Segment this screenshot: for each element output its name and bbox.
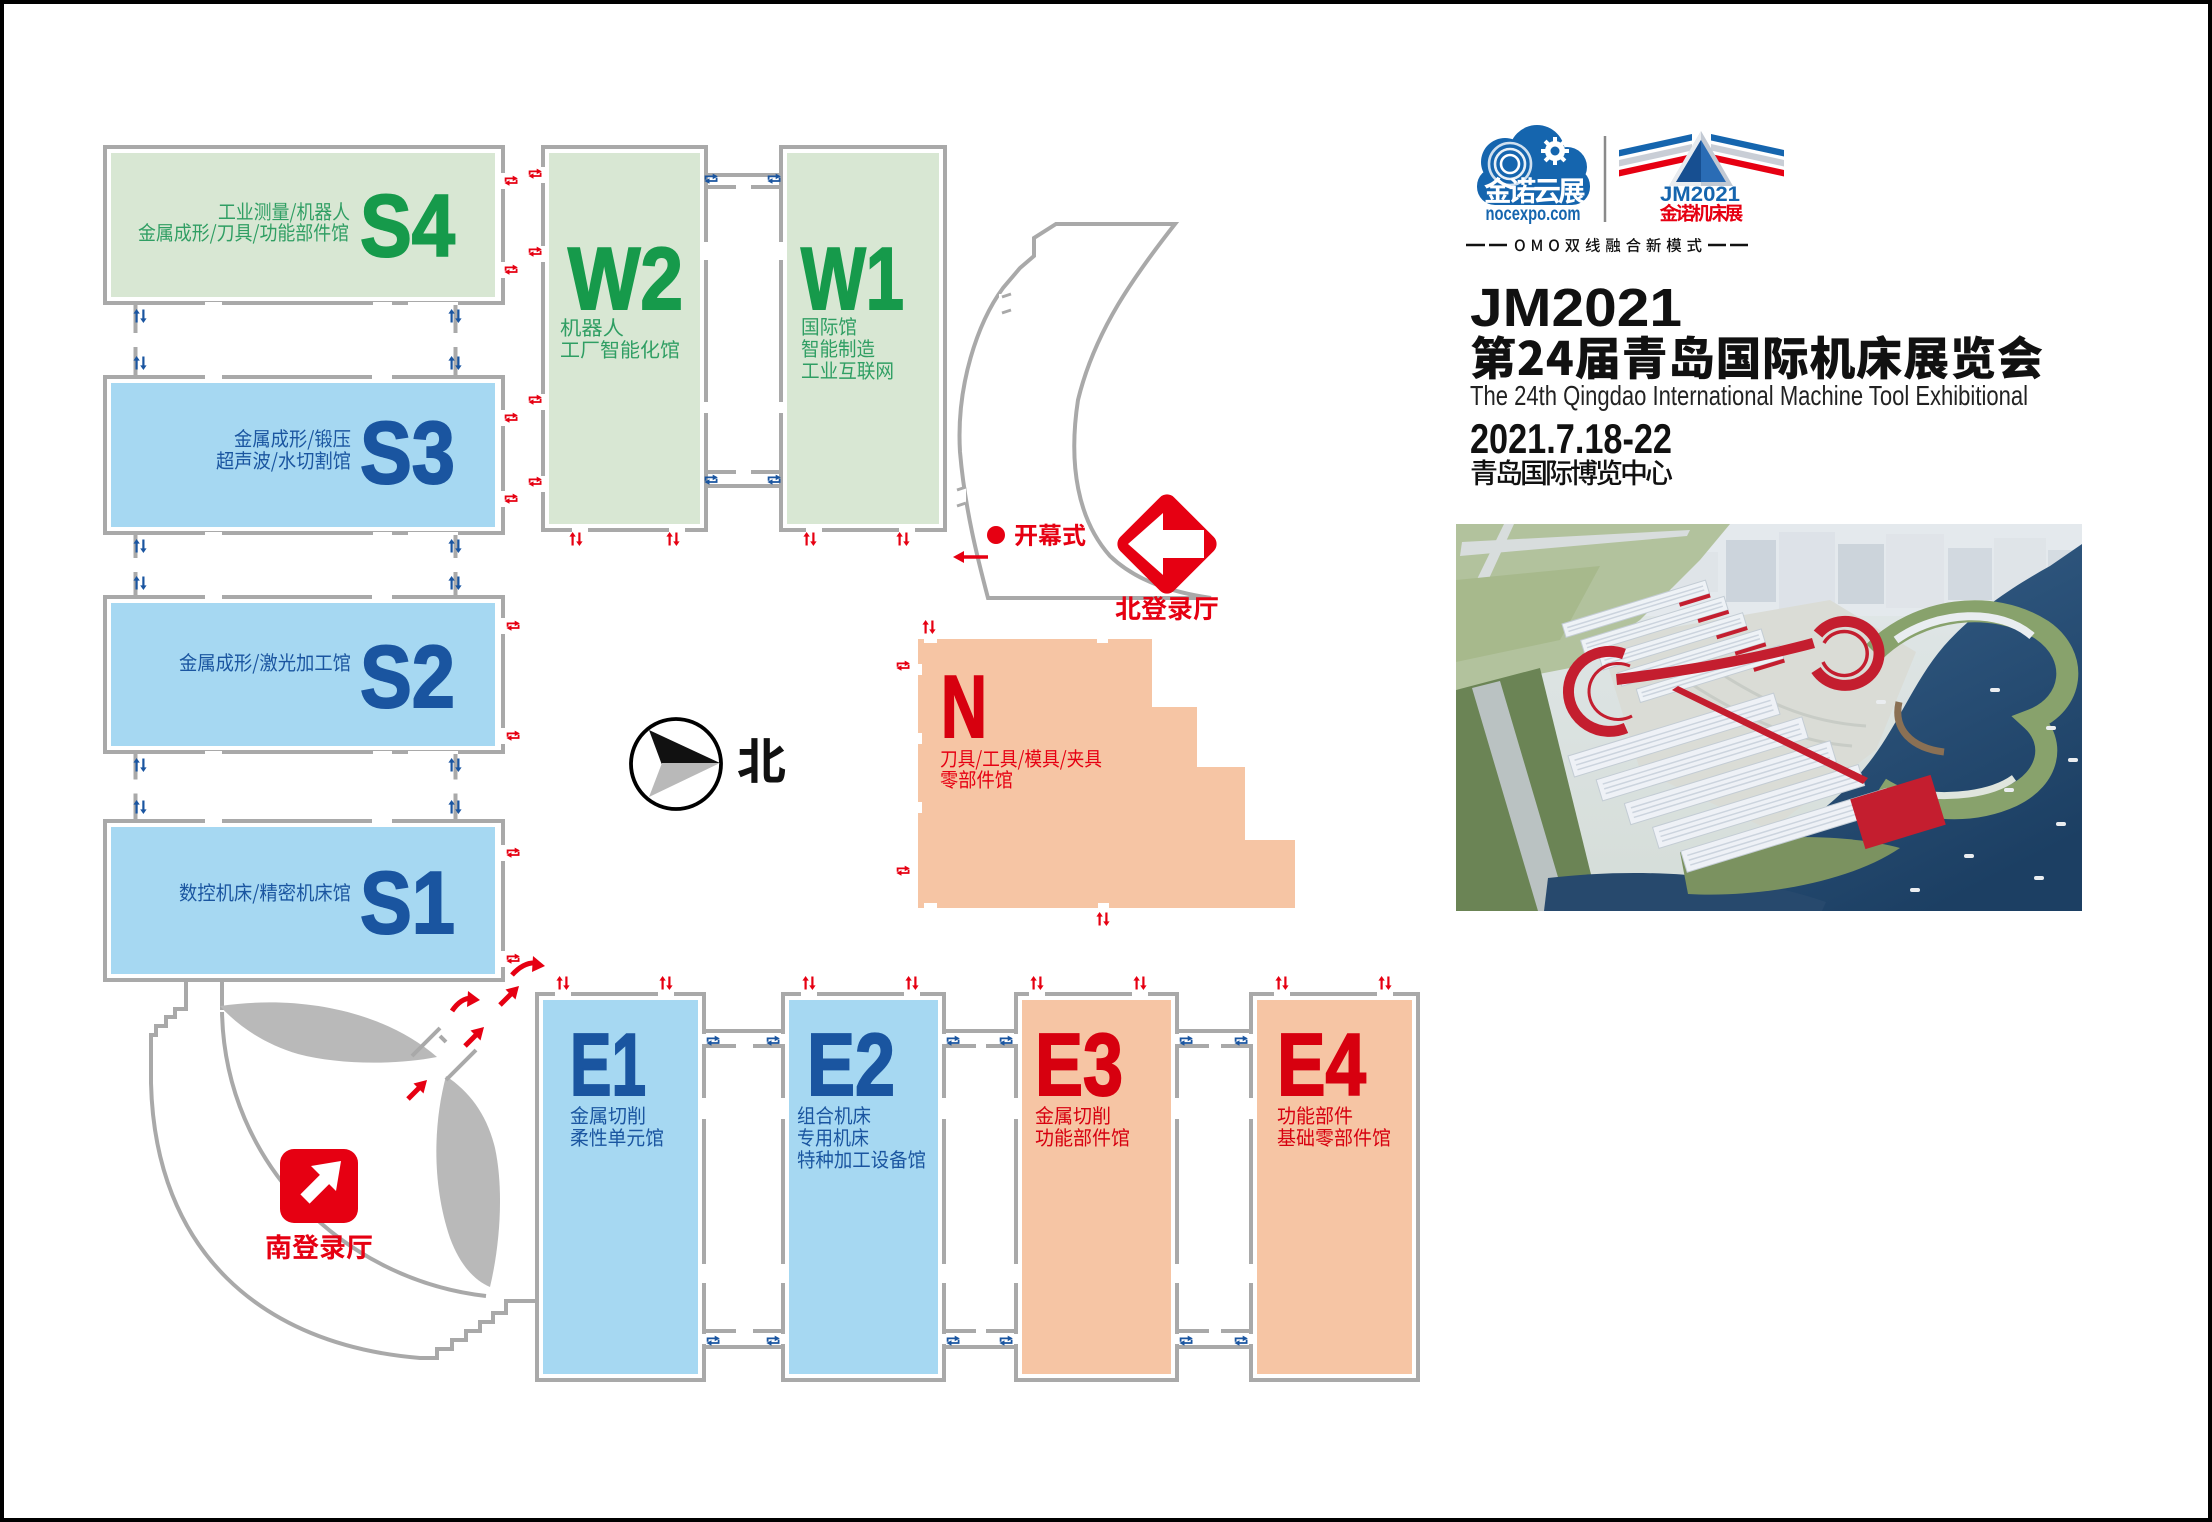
- svg-text:S4: S4: [360, 176, 455, 275]
- svg-text:2021.7.18-22: 2021.7.18-22: [1470, 415, 1672, 462]
- svg-text:E1: E1: [570, 1015, 646, 1114]
- svg-text:The 24th Qingdao International: The 24th Qingdao International Machine T…: [1470, 380, 2028, 411]
- svg-text:S2: S2: [360, 627, 455, 726]
- svg-text:JM2021: JM2021: [1660, 183, 1740, 206]
- svg-text:E2: E2: [807, 1015, 895, 1114]
- svg-text:S1: S1: [360, 853, 455, 952]
- svg-text:E3: E3: [1035, 1015, 1123, 1114]
- svg-text:nocexpo.com: nocexpo.com: [1486, 204, 1581, 225]
- svg-text:E4: E4: [1277, 1015, 1366, 1114]
- svg-text:JM2021: JM2021: [1470, 278, 1682, 338]
- svg-text:W2: W2: [568, 229, 683, 328]
- svg-text:S3: S3: [360, 403, 455, 502]
- svg-text:N: N: [941, 657, 987, 756]
- svg-text:W1: W1: [801, 229, 904, 328]
